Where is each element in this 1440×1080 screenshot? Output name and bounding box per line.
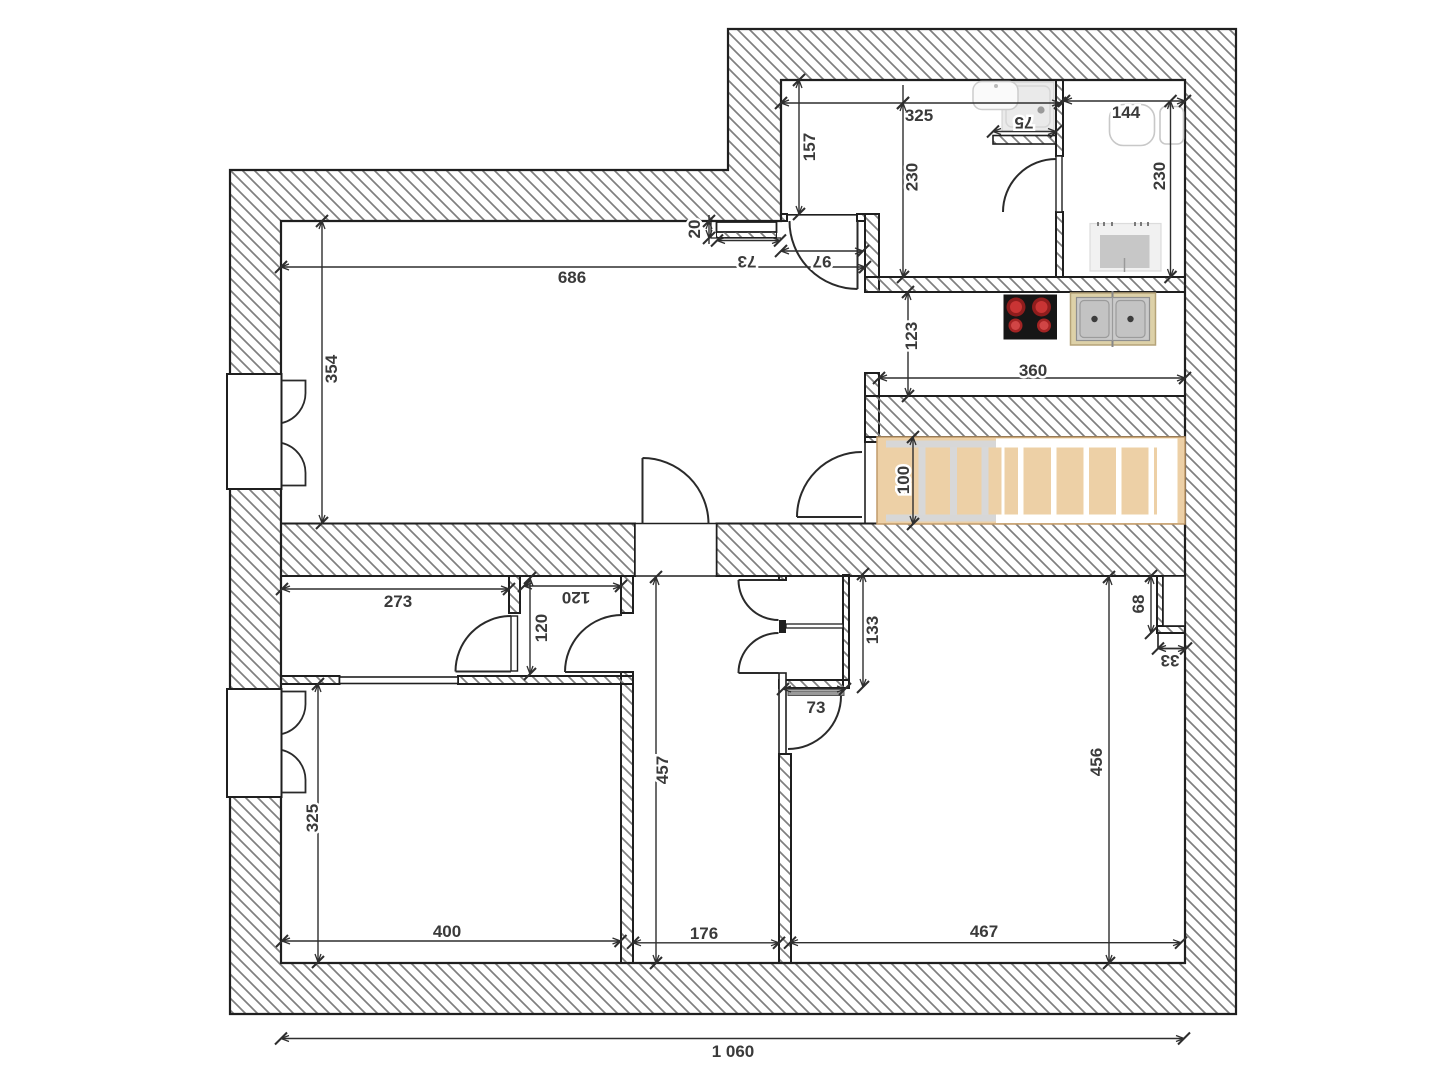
svg-text:456: 456: [1087, 748, 1106, 776]
svg-text:73: 73: [738, 252, 757, 271]
svg-text:325: 325: [303, 804, 322, 832]
svg-text:273: 273: [384, 592, 412, 611]
svg-text:68: 68: [1129, 595, 1148, 614]
svg-text:75: 75: [1015, 113, 1034, 132]
svg-text:144: 144: [1112, 103, 1141, 122]
svg-text:120: 120: [532, 614, 551, 642]
svg-text:157: 157: [800, 133, 819, 161]
svg-text:457: 457: [653, 756, 672, 784]
svg-text:1 060: 1 060: [712, 1042, 755, 1061]
svg-text:120: 120: [562, 588, 590, 607]
svg-text:73: 73: [807, 698, 826, 717]
svg-text:354: 354: [322, 354, 341, 383]
svg-text:467: 467: [970, 922, 998, 941]
svg-text:97: 97: [813, 252, 832, 271]
svg-text:686: 686: [558, 268, 586, 287]
svg-text:20: 20: [685, 220, 704, 239]
svg-text:100: 100: [894, 466, 913, 494]
svg-text:360: 360: [1019, 361, 1047, 380]
svg-text:133: 133: [863, 616, 882, 644]
svg-text:33: 33: [1161, 651, 1180, 670]
svg-text:230: 230: [1150, 162, 1169, 190]
svg-text:325: 325: [905, 106, 933, 125]
svg-text:176: 176: [690, 924, 718, 943]
svg-text:400: 400: [433, 922, 461, 941]
svg-text:123: 123: [902, 322, 921, 350]
svg-text:230: 230: [902, 163, 921, 191]
